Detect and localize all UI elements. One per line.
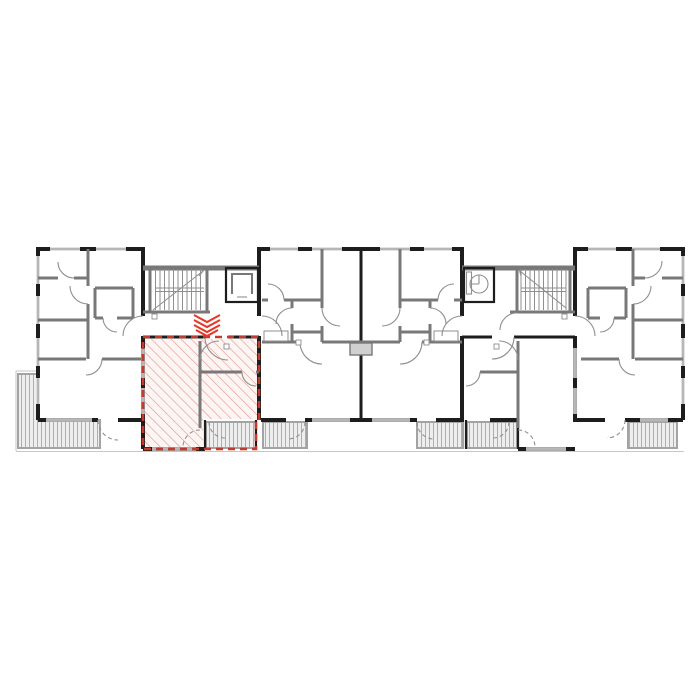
floor-plan-canvas	[0, 0, 700, 700]
elevator-left	[226, 268, 258, 302]
interior-walls-center-right	[361, 249, 462, 342]
interior-walls-right-apartment	[581, 249, 683, 359]
chevron-down-icon[interactable]	[194, 315, 220, 336]
shaft-block	[350, 343, 372, 355]
interior-walls-left-apartment	[38, 249, 141, 359]
interior-walls-center-left	[262, 249, 361, 342]
elevator-right	[464, 268, 494, 302]
terrace	[18, 374, 100, 448]
balcony-5	[628, 422, 677, 448]
balcony-2	[263, 422, 307, 448]
balcony-1	[206, 422, 256, 448]
stairwell-right	[510, 268, 575, 312]
balconies	[206, 422, 677, 448]
interior-walls-below-right-core	[480, 341, 518, 428]
stairwell-left	[143, 268, 210, 312]
floor-plan-svg	[0, 0, 700, 700]
balcony-4	[467, 422, 517, 448]
